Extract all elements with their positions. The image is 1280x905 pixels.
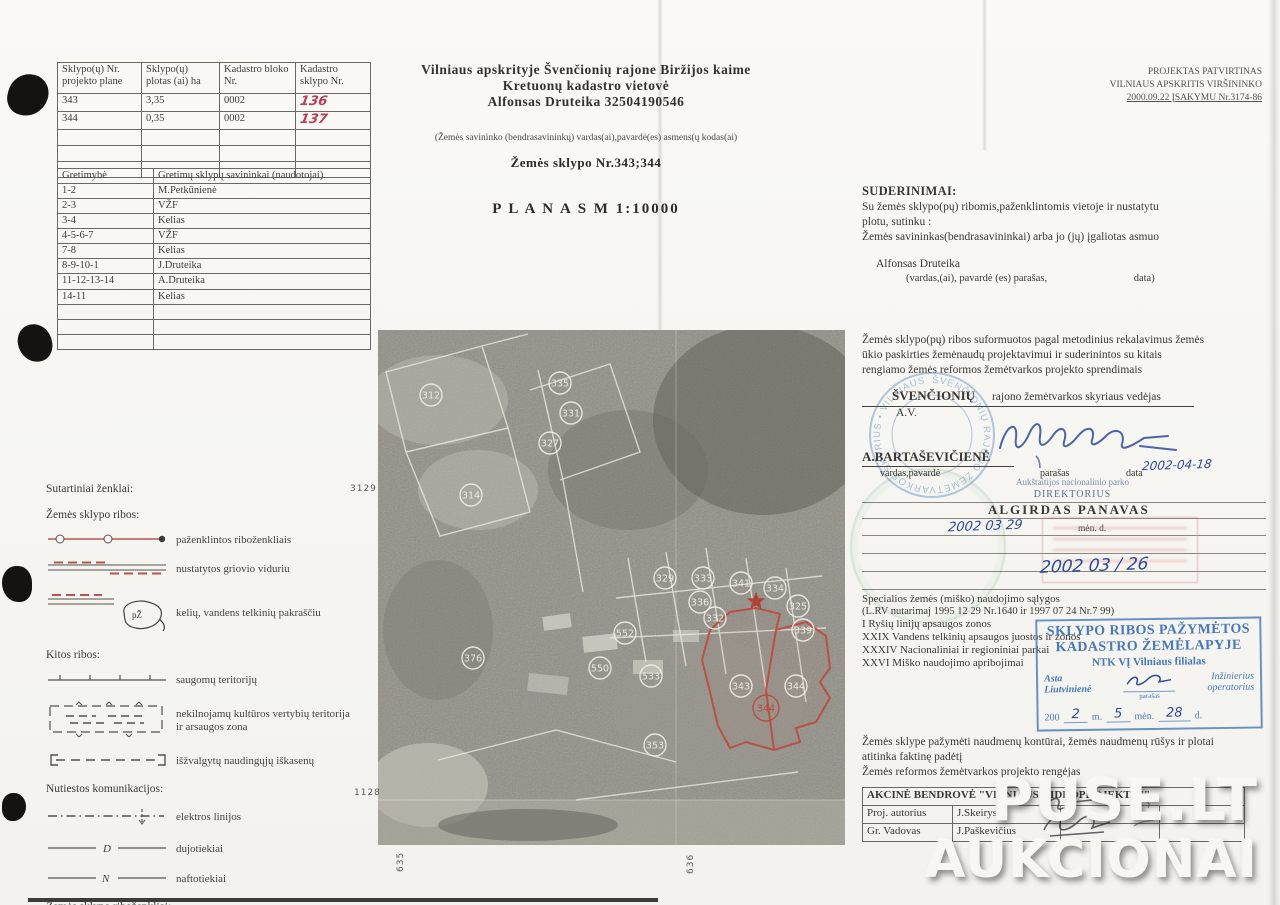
legend-item: paženklintos riboženkliais: [46, 533, 356, 548]
power-lines-icon: [46, 807, 176, 828]
stamp-date-hand: 2: [1063, 707, 1088, 723]
legend-section-heading: Žemės sklypo riboženkliai:: [46, 901, 356, 905]
document-title-block: Vilniaus apskrityje Švenčionių rajone Bi…: [390, 62, 782, 218]
legend-item-label: išžvalgytų naudingųjų iškasenų: [176, 755, 314, 768]
svg-text:552: 552: [616, 629, 634, 640]
svg-text:341: 341: [732, 579, 750, 590]
svg-text:N: N: [101, 873, 110, 885]
map-coordinate-label: 3129: [350, 484, 377, 494]
conditions-title: Specialios žemės (miško) naudojimo sąlyg…: [862, 593, 1272, 606]
svg-text:312: 312: [422, 391, 440, 402]
legend-item-label: elektros linijos: [176, 811, 241, 824]
legend: Sutartiniai ženklai: Žemės sklypo ribos:…: [46, 483, 356, 905]
av-label: A.V.: [896, 406, 917, 421]
svg-text:334: 334: [766, 584, 784, 595]
confirm-line: Žemės sklype pažymėti naudmenų kontūrai,…: [862, 735, 1276, 750]
column-header: Gretimų sklypų savininkai (naudotojai): [154, 169, 371, 184]
legend-item-label: naftotiekiai: [176, 873, 226, 886]
legend-title: Sutartiniai ženklai:: [46, 483, 356, 495]
ink-blot: [2, 566, 32, 602]
svg-text:344: 344: [787, 682, 805, 693]
plot-number: Žemės sklypo Nr.343;344: [390, 155, 782, 171]
legend-item: nustatytos griovio viduriu: [46, 561, 356, 578]
fold-crease: [982, 0, 987, 150]
legend-section-heading: Kitos ribos:: [46, 649, 356, 661]
agreements-line: Žemės savininkas(bendrasavininkai) arba …: [862, 230, 1272, 245]
district-line: ŠVENČIONIŲ rajono žemėtvarkos skyriaus v…: [862, 388, 1194, 407]
table-row: 3440,350002137: [58, 111, 371, 129]
svg-text:332: 332: [706, 614, 724, 625]
table-row: [58, 145, 371, 161]
owner-name: Alfonsas Druteika: [862, 257, 1272, 272]
legend-item: Ddujotiekiai: [46, 841, 356, 858]
plot-numbers-table: Sklypo(ų) Nr. projekto planeSklypo(ų) pl…: [57, 62, 371, 178]
stamp-name: Asta: [1044, 673, 1062, 684]
legend-item-label: nekilnojamų kultūros vertybių teritorija…: [176, 708, 356, 733]
confirm-line: atitinka faktinę padėtį: [862, 750, 1276, 765]
district-role: rajono žemėtvarkos skyriaus vedėjas: [992, 391, 1161, 403]
approval-note: PROJEKTAS PATVIRTINAS VILNIAUS APSKRITIS…: [992, 66, 1262, 104]
svg-text:353: 353: [646, 741, 664, 752]
approval-order: 2000.09.22 ĮSAKYMU Nr.3174-86: [992, 92, 1262, 105]
legend-item: nekilnojamų kultūros vertybių teritorija…: [46, 701, 356, 740]
column-header: Kadastro bloko Nr.: [220, 63, 296, 94]
oil-pipeline-icon: N: [46, 871, 176, 888]
svg-text:pŽ: pŽ: [132, 610, 142, 620]
scanned-land-plan-document: Sklypo(ų) Nr. projekto planeSklypo(ų) pl…: [0, 0, 1280, 905]
owner-sign-caption: (vardas,(ai), pavardė (es) parašas,: [906, 273, 1047, 284]
stamp-sig-caption: parašas: [1124, 691, 1176, 701]
column-header: Sklypo(ų) plotas (ai) ha: [142, 63, 220, 94]
owner-caption: (Žemės savininko (bendrasavininkų) varda…: [390, 133, 782, 143]
formation-line: rengiamo žemės reformos žemėtvarkos proj…: [862, 363, 1276, 378]
table-row: 11-12-13-14A.Druteika: [58, 274, 371, 289]
map-coordinate-label: 1128: [354, 788, 381, 798]
column-header: Kadastro sklypo Nr.: [296, 63, 371, 94]
handwritten-registry-date: 2002 03 / 26: [1039, 554, 1150, 578]
svg-text:327: 327: [541, 439, 559, 450]
map-coordinate-label: 636: [686, 854, 696, 874]
legend-item: pŽkelių, vandens telkinių pakraščiu: [46, 591, 356, 636]
stamp-line: NTK VĮ Vilniaus filialas: [1044, 655, 1254, 670]
stamp-date-hand: 5: [1106, 706, 1131, 722]
approval-line: PROJEKTAS PATVIRTINAS: [992, 66, 1262, 79]
table-row: 2-3VŽF: [58, 199, 371, 214]
ditch-middle-icon: [46, 561, 176, 578]
ink-blot: [2, 793, 26, 821]
adjacency-table: GretimybėGretimų sklypų savininkai (naud…: [57, 168, 371, 350]
legend-item: Nnaftotiekiai: [46, 871, 356, 888]
ink-blot: [4, 70, 53, 120]
district-name: ŠVENČIONIŲ: [862, 388, 975, 403]
svg-text:376: 376: [464, 654, 482, 665]
road-water-edge-icon: pŽ: [46, 591, 176, 636]
agreements-block: SUDERINIMAI: Su žemės sklypo(pų) ribomis…: [862, 183, 1272, 285]
title-line: Kretuonų kadastro vietovė: [390, 78, 782, 94]
stamp-date-part: 200: [1045, 712, 1060, 723]
formation-paragraph: Žemės sklypo(pų) ribos suformuotos pagal…: [862, 333, 1276, 378]
stamp-role: Inžinierius: [1211, 671, 1254, 683]
aerial-photo: 3123353313273143293333413343363323253395…: [378, 330, 845, 845]
table-row: 8-9-10-1J.Druteika: [58, 259, 371, 274]
formation-line: ūkio paskirties žemėnaudų projektavimui …: [862, 348, 1276, 363]
table-row: 1-2M.Petkūnienė: [58, 184, 371, 199]
official-name: A.BARTAŠEVIČIENĖ: [862, 449, 1014, 467]
column-header: Sklypo(ų) Nr. projekto plane: [58, 63, 142, 94]
legend-item-label: paženklintos riboženkliais: [176, 534, 291, 547]
svg-text:329: 329: [656, 574, 674, 585]
cadastre-stamp: SKLYPO RIBOS PAŽYMĖTOS KADASTRO ŽEMĖLAPY…: [1035, 616, 1263, 731]
svg-text:533: 533: [642, 672, 660, 683]
name-caption: vardas,pavardė: [880, 467, 940, 480]
stamp-date-hand: 28: [1158, 705, 1191, 721]
stamp-date-part: d.: [1195, 710, 1203, 721]
column-header: Gretimybė: [58, 169, 154, 184]
boundary-marked-icon: [46, 533, 176, 548]
stamp-line: KADASTRO ŽEMĖLAPYJE: [1044, 638, 1254, 657]
svg-text:343: 343: [732, 682, 750, 693]
protected-territory-icon: [46, 673, 176, 688]
mineral-deposits-icon: [46, 753, 176, 770]
svg-text:550: 550: [591, 664, 609, 675]
legend-section-heading: Žemės sklypo ribos:: [46, 509, 356, 521]
title-line: Vilniaus apskrityje Švenčionių rajone Bi…: [390, 62, 782, 78]
stamp-date-part: mėn.: [1134, 711, 1154, 722]
stamp-role: operatorius: [1207, 682, 1254, 694]
gas-pipeline-icon: D: [46, 841, 176, 858]
title-line: Alfonsas Druteika 32504190546: [390, 94, 782, 110]
svg-text:314: 314: [462, 491, 480, 502]
owner-date-caption: data): [1134, 273, 1155, 284]
legend-item-label: saugomų teritorijų: [176, 674, 257, 687]
legend-item: elektros linijos: [46, 807, 356, 828]
table-row: [58, 334, 371, 349]
legend-section-heading: Nutiestos komunikacijos:: [46, 783, 356, 795]
table-row: 3-4Kelias: [58, 214, 371, 229]
table-row: 3433,350002136: [58, 94, 371, 112]
svg-text:344: 344: [757, 704, 775, 715]
svg-text:333: 333: [694, 574, 712, 585]
svg-text:336: 336: [691, 598, 709, 609]
park-caption: Aukštaitijos nacionalinio parko: [960, 477, 1185, 489]
agreements-line: plotu, sutinku :: [862, 215, 1272, 230]
aerial-photo-map: 3123353313273143293333413343363323253395…: [378, 330, 845, 845]
handwritten-date: 2002-04-18: [1141, 457, 1212, 473]
svg-text:D: D: [102, 843, 111, 855]
stamp-name: Liutvinienė: [1044, 684, 1091, 696]
table-row: [58, 304, 371, 319]
watermark-puse-lt: PUSE.LT: [991, 766, 1258, 834]
approval-line: VILNIAUS APSKRITIS VIRŠININKO: [992, 79, 1262, 92]
legend-item: saugomų teritorijų: [46, 673, 356, 688]
handwritten-park-date: 2002 03 29: [947, 518, 1023, 536]
stamp-signature: [1123, 672, 1175, 689]
table-row: [58, 129, 371, 145]
table-row: 14-11Kelias: [58, 289, 371, 304]
table-row: 4-5-6-7VŽF: [58, 229, 371, 244]
legend-item-label: nustatytos griovio viduriu: [176, 563, 290, 576]
legend-item: išžvalgytų naudingųjų iškasenų: [46, 753, 356, 770]
svg-text:335: 335: [551, 379, 569, 390]
map-coordinate-label: 635: [396, 852, 406, 872]
agreements-heading: SUDERINIMAI:: [862, 184, 957, 198]
watermark-aukcionai: AUKCIONAI: [925, 830, 1258, 890]
park-director-caption: DIREKTORIUS: [960, 488, 1185, 501]
plan-scale: P L A N A S M 1:10000: [390, 201, 782, 218]
stamp-date-part: m.: [1092, 712, 1102, 723]
agreements-line: Su žemės sklypo(pų) ribomis,paženklintom…: [862, 200, 1272, 215]
cultural-heritage-icon: [46, 701, 176, 740]
ink-blot: [15, 321, 55, 364]
svg-text:325: 325: [789, 602, 807, 613]
legend-item-label: dujotiekiai: [176, 843, 223, 856]
table-row: 7-8Kelias: [58, 244, 371, 259]
table-row: [58, 319, 371, 334]
formation-line: Žemės sklypo(pų) ribos suformuotos pagal…: [862, 333, 1276, 348]
svg-text:339: 339: [794, 626, 812, 637]
legend-item-label: kelių, vandens telkinių pakraščiu: [176, 607, 321, 620]
svg-text:331: 331: [562, 409, 580, 420]
